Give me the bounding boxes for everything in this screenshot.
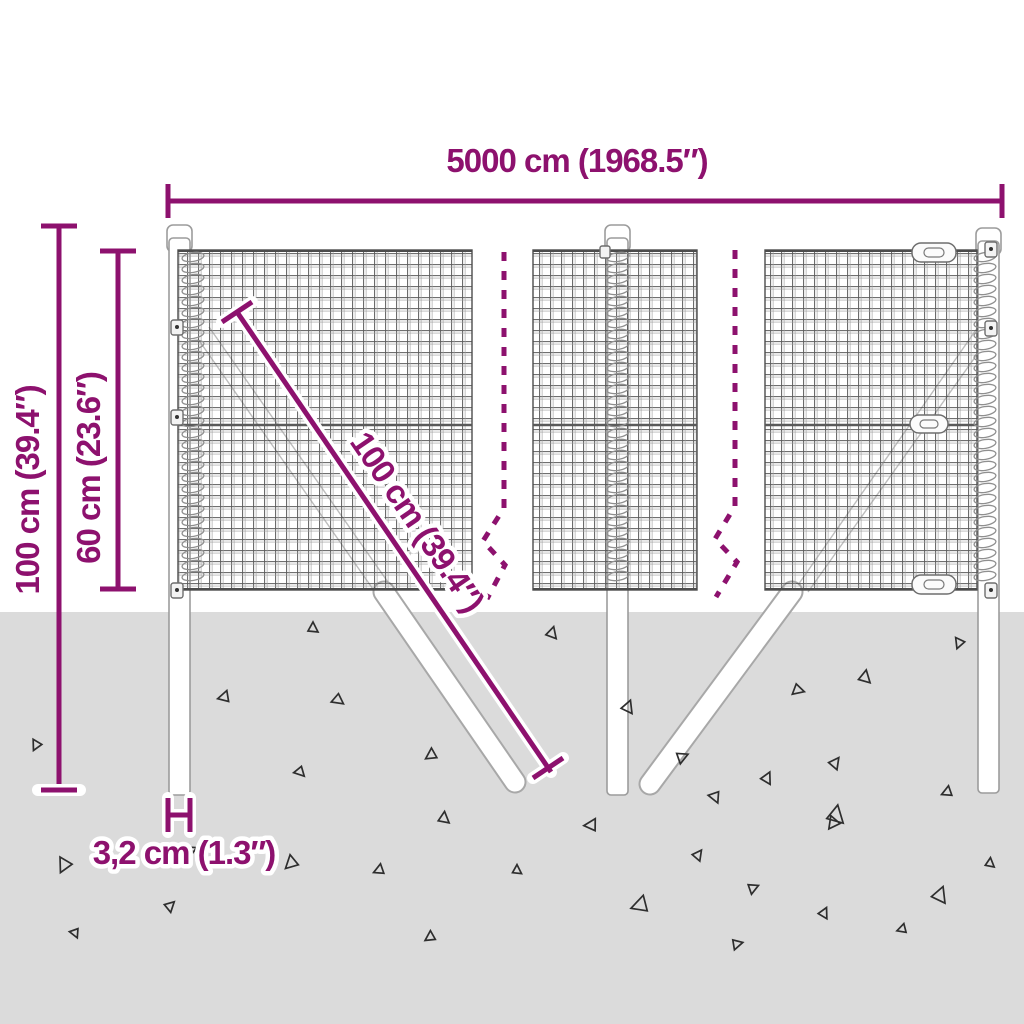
post-width-dim-label: 3,2 cm (1.3″) [93,834,276,871]
clamp-right-top [985,242,997,257]
clamp-left-mid [171,410,183,425]
dimension-mesh-height: 60 cm (23.6″) [70,251,136,589]
clamp-middle-top [600,246,610,258]
clamp-bolt-icon [989,247,993,251]
total-height-dim-label: 100 cm (39.4″) [9,385,46,594]
width-dim-label: 5000 cm (1968.5″) [446,142,707,179]
clamp-bolt-icon [175,415,179,419]
mesh-height-dim-label: 60 cm (23.6″) [70,372,107,564]
clamp-left-bottom [171,583,183,598]
fitting-shell [912,243,956,262]
mesh-panels [178,250,977,590]
fitting-shell [912,575,956,594]
fence-dimension-diagram: 5000 cm (1968.5″) 100 cm (39.4″) 60 cm (… [0,0,1024,1024]
clamp-bolt-icon [989,588,993,592]
ground-surface [0,612,1024,1024]
clamp-right-mid [985,321,997,336]
diagram-canvas: 5000 cm (1968.5″) 100 cm (39.4″) 60 cm (… [0,0,1024,1024]
clamp-bolt-icon [989,326,993,330]
clamp-right-bottom [985,583,997,598]
dimension-width: 5000 cm (1968.5″) [168,142,1002,218]
tension-fitting-top [912,243,956,262]
tension-fitting-bottom [912,575,956,594]
ground [0,612,1024,1024]
break-mark-right [715,250,737,597]
clamp-left-top [171,320,183,335]
break-mark-left [483,252,505,599]
clamp-bolt-icon [175,325,179,329]
fitting-shell [910,415,948,433]
clamp-bolt-icon [175,588,179,592]
tension-fitting-mid [910,415,948,433]
